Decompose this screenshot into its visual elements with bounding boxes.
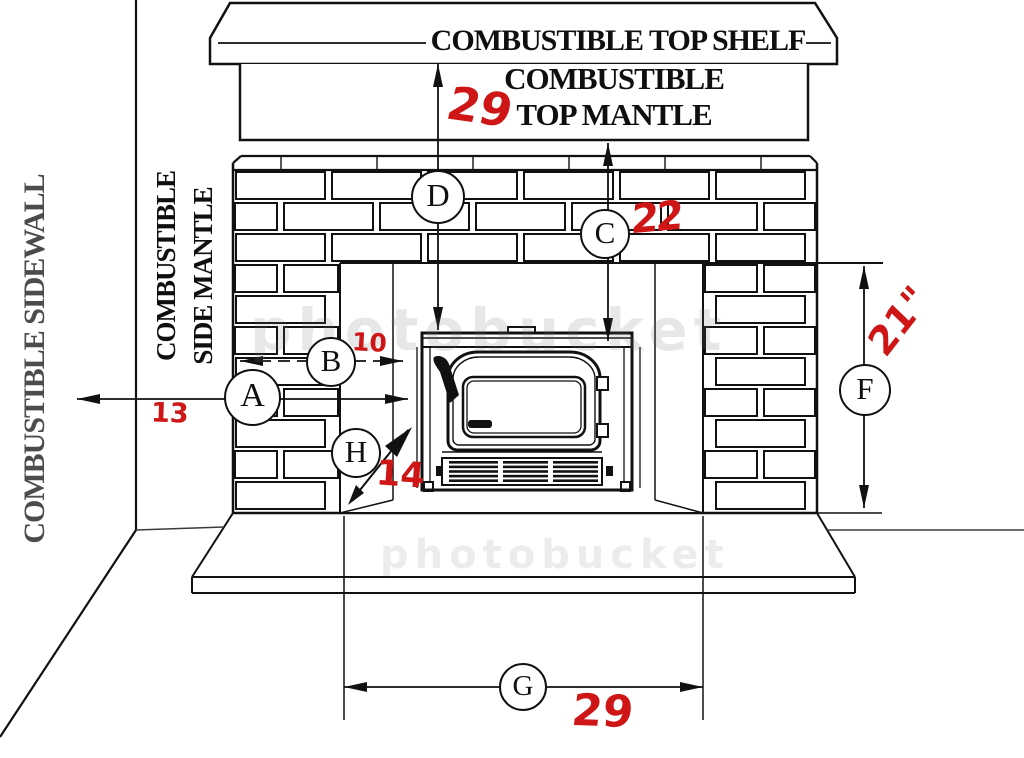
dim-circle-B: B <box>306 337 356 387</box>
side-mantle-label-line1: COMBUSTIBLE <box>151 134 181 398</box>
dim-circle-H: H <box>331 428 381 478</box>
dim-circle-F: F <box>839 364 891 416</box>
dim-value-B: 10 <box>351 329 387 356</box>
watermark-text: photobucket <box>380 532 730 578</box>
dim-circle-G: G <box>499 663 547 711</box>
dim-value-H: 14 <box>375 456 426 494</box>
fireplace-clearance-diagram: photobucket photobucket COMBUSTIBLE TOP … <box>0 0 1024 758</box>
top-shelf-label: COMBUSTIBLE TOP SHELF <box>428 24 808 58</box>
side-mantle-label-line2: SIDE MANTLE <box>188 144 218 408</box>
dim-value-C: 22 <box>630 196 682 241</box>
dim-circle-A: A <box>224 369 281 426</box>
dim-value-D: 29 <box>443 80 518 134</box>
dim-circle-C: C <box>580 209 630 259</box>
sidewall-label: COMBUSTIBLE SIDEWALL <box>18 167 54 551</box>
dim-value-A: 13 <box>151 399 189 427</box>
dim-circle-D: D <box>411 170 465 224</box>
dim-value-G: 29 <box>570 689 636 735</box>
